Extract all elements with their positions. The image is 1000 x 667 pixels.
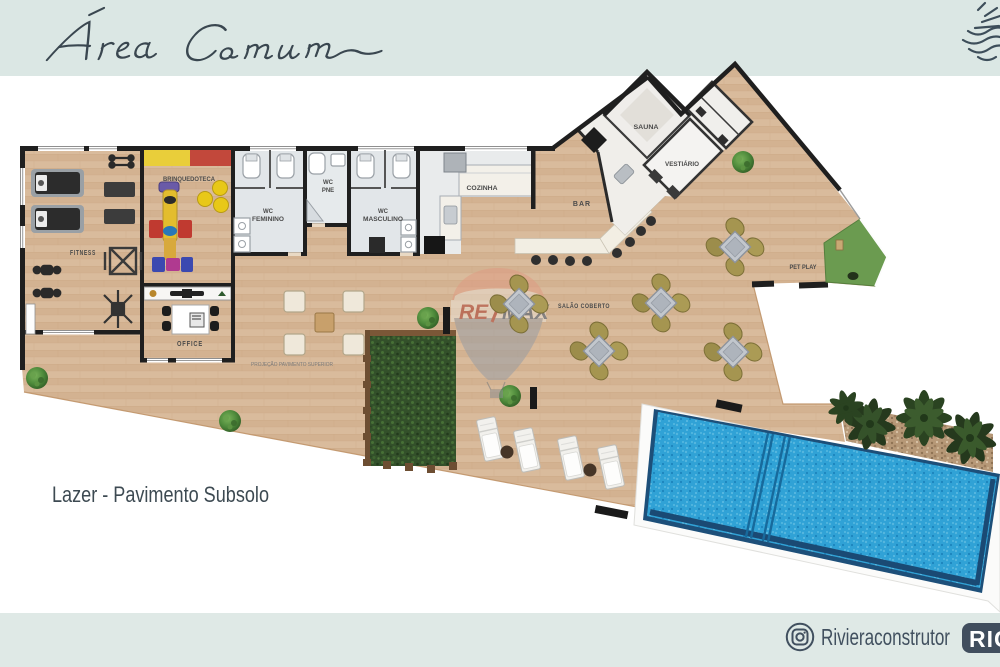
svg-text:BAR: BAR [573, 201, 591, 208]
svg-text:FEMININO: FEMININO [252, 217, 284, 223]
svg-text:PNE: PNE [322, 188, 334, 194]
svg-text:Lazer - Pavimento Subsolo: Lazer - Pavimento Subsolo [52, 482, 269, 507]
svg-text:Rivieraconstrutor: Rivieraconstrutor [821, 624, 950, 650]
svg-text:PET PLAY: PET PLAY [790, 264, 818, 271]
svg-text:WC: WC [323, 180, 334, 186]
svg-text:RIC: RIC [969, 626, 1000, 652]
svg-text:PROJEÇÃO PAVIMENTO SUPERIOR: PROJEÇÃO PAVIMENTO SUPERIOR [251, 361, 333, 368]
svg-text:BRINQUEDOTECA: BRINQUEDOTECA [163, 177, 216, 183]
svg-text:SALÃO COBERTO: SALÃO COBERTO [558, 301, 610, 310]
svg-text:OFFICE: OFFICE [177, 341, 203, 348]
svg-text:FITNESS: FITNESS [70, 250, 96, 257]
svg-text:WC: WC [378, 209, 389, 215]
svg-text:RE: RE [459, 301, 489, 324]
svg-text:COZINHA: COZINHA [467, 185, 498, 192]
svg-text:MASCULINO: MASCULINO [363, 217, 403, 223]
svg-text:WC: WC [263, 209, 274, 215]
svg-text:VESTIÁRIO: VESTIÁRIO [665, 159, 699, 168]
svg-text:SAUNA: SAUNA [634, 124, 659, 131]
